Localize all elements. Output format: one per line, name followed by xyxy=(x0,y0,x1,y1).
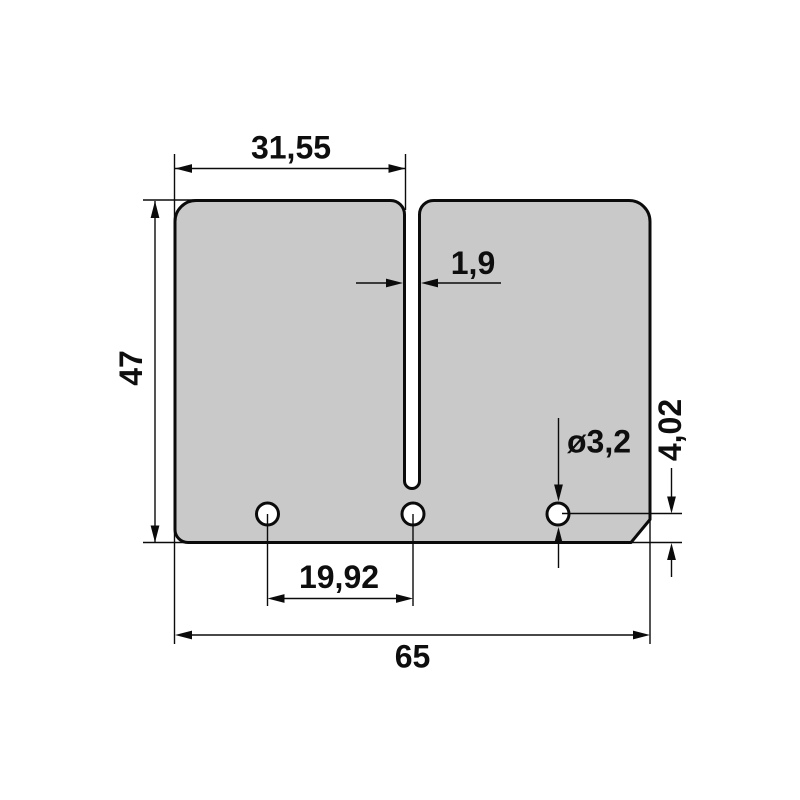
svg-text:19,92: 19,92 xyxy=(299,559,379,595)
svg-text:1,9: 1,9 xyxy=(451,245,495,281)
svg-text:65: 65 xyxy=(395,639,431,675)
svg-text:4,02: 4,02 xyxy=(652,399,688,461)
svg-text:31,55: 31,55 xyxy=(251,130,331,166)
svg-text:47: 47 xyxy=(113,350,149,386)
svg-text:ø3,2: ø3,2 xyxy=(567,424,631,460)
